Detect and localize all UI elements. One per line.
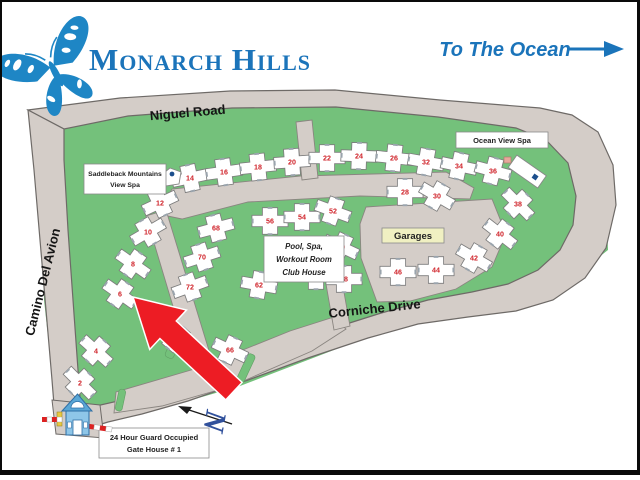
saddleback-line1: Saddleback Mountains xyxy=(88,171,162,178)
building-roof-mark xyxy=(274,161,276,166)
building-number: 54 xyxy=(298,213,306,221)
frame-left xyxy=(0,0,2,475)
building-number: 46 xyxy=(394,268,402,276)
building-roof-mark xyxy=(434,256,439,258)
building-roof-mark xyxy=(300,203,305,205)
building-number: 24 xyxy=(355,152,363,160)
building-number: 22 xyxy=(323,154,331,162)
building-number: 10 xyxy=(144,228,152,236)
building-number: 36 xyxy=(489,167,497,175)
gatehouse-line1: 24 Hour Guard Occupied xyxy=(110,433,199,442)
garages-text: Garages xyxy=(394,231,432,242)
garages-label: Garages xyxy=(382,228,444,243)
ocean-spa-text: Ocean View Spa xyxy=(473,136,532,145)
building-number: 68 xyxy=(212,224,220,232)
gatehouse-label: 24 Hour Guard Occupied Gate House # 1 xyxy=(99,428,209,458)
building-roof-mark xyxy=(325,170,330,172)
site-map-page: 1416182022242632343628301210864268707256… xyxy=(0,0,640,480)
building-roof-mark xyxy=(452,268,454,273)
page-title: Monarch Hills xyxy=(89,42,311,77)
ocean-direction: To The Ocean xyxy=(439,39,624,61)
saddleback-line2: View Spa xyxy=(110,182,140,189)
saddleback-spa-label: Saddleback Mountains View Spa xyxy=(84,164,166,194)
building-roof-mark xyxy=(289,148,294,150)
building-roof-mark xyxy=(309,156,311,161)
building-number: 8 xyxy=(131,260,135,268)
building-number: 44 xyxy=(432,266,440,274)
building-roof-mark xyxy=(396,284,401,286)
building-roof-mark xyxy=(418,268,420,273)
building-roof-mark xyxy=(414,270,416,275)
building-number: 12 xyxy=(156,199,164,207)
building-roof-mark xyxy=(380,270,382,275)
building-roof-mark xyxy=(403,204,408,206)
building-number: 38 xyxy=(514,200,522,208)
building-roof-mark xyxy=(314,288,319,290)
building-number: 56 xyxy=(266,217,274,225)
building-number: 34 xyxy=(455,162,463,170)
building-roof-mark xyxy=(284,215,286,220)
frame-top xyxy=(0,0,640,2)
building-roof-mark xyxy=(356,168,361,170)
building-roof-mark xyxy=(341,153,343,158)
building-number: 40 xyxy=(496,230,504,238)
clubhouse-line2: Workout Room xyxy=(276,255,332,264)
monarch-hills-map: 1416182022242632343628301210864268707256… xyxy=(0,0,640,480)
building-number: 52 xyxy=(329,207,337,215)
building-roof-mark xyxy=(357,142,362,144)
building-number: 30 xyxy=(433,192,441,200)
gatehouse-line2: Gate House # 1 xyxy=(127,445,181,454)
building-number: 26 xyxy=(390,154,398,162)
building-number: 62 xyxy=(255,281,263,289)
clubhouse-label: Pool, Spa, Workout Room Club House xyxy=(264,236,344,282)
building-number: 4 xyxy=(94,347,98,355)
building-roof-mark xyxy=(325,144,330,146)
building-roof-mark xyxy=(300,229,305,231)
building-number: 72 xyxy=(186,283,194,291)
building-number: 70 xyxy=(198,253,206,261)
building-roof-mark xyxy=(387,190,389,195)
gate-arm-left xyxy=(42,417,62,422)
building-roof-mark xyxy=(290,174,295,176)
building-roof-mark xyxy=(268,207,273,209)
building-roof-mark xyxy=(396,258,401,260)
building-roof-mark xyxy=(403,178,408,180)
building-roof-mark xyxy=(318,215,320,220)
building-number: 20 xyxy=(288,158,296,166)
building-number: 16 xyxy=(220,168,228,176)
building-roof-mark xyxy=(360,277,362,282)
building-roof-mark xyxy=(252,219,254,224)
building-number: 18 xyxy=(254,163,262,171)
frame-bottom xyxy=(0,470,640,475)
ocean-view-spa-label: Ocean View Spa xyxy=(456,132,548,148)
clubhouse-line3: Club House xyxy=(282,268,326,277)
building-number: 2 xyxy=(78,379,82,387)
clubhouse-line1: Pool, Spa, xyxy=(285,242,323,251)
ocean-label: To The Ocean xyxy=(439,39,571,61)
building-number: 14 xyxy=(186,174,194,182)
building-number: 32 xyxy=(422,158,430,166)
building-roof-mark xyxy=(268,233,273,235)
building-roof-mark xyxy=(434,282,439,284)
building-number: 6 xyxy=(118,290,122,298)
building-number: 28 xyxy=(401,188,409,196)
building-roof-mark xyxy=(342,291,347,293)
building-number: 42 xyxy=(470,254,478,262)
building-number: 66 xyxy=(226,346,234,354)
ocean-arrow-head xyxy=(604,41,624,57)
